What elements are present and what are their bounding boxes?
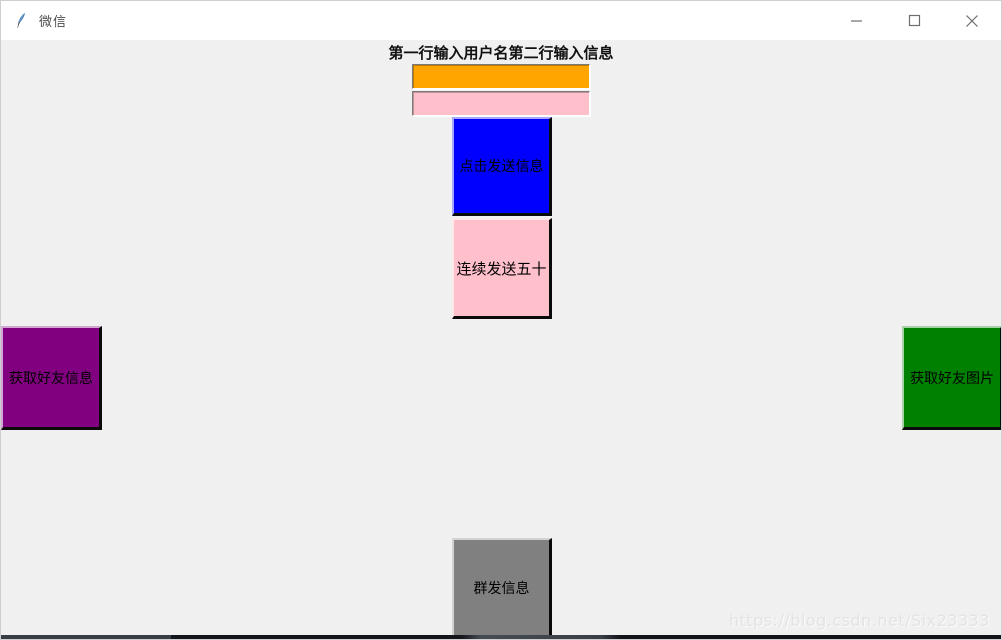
tk-feather-icon	[13, 12, 30, 29]
minimize-icon	[850, 14, 863, 27]
title-bar: 微信	[1, 1, 1001, 40]
get-friend-images-button[interactable]: 获取好友图片	[902, 326, 1002, 430]
minimize-button[interactable]	[827, 1, 885, 40]
send-fifty-button[interactable]: 连续发送五十	[452, 218, 552, 319]
app-window: 微信 第一行输入用户名第二行输入信息 点击发送信	[0, 0, 1002, 640]
get-friend-info-button[interactable]: 获取好友信息	[1, 326, 102, 430]
username-input[interactable]	[412, 64, 590, 89]
close-icon	[965, 14, 979, 28]
maximize-icon	[908, 14, 921, 27]
maximize-button[interactable]	[885, 1, 943, 40]
message-input[interactable]	[412, 91, 590, 116]
mass-send-button[interactable]: 群发信息	[452, 538, 552, 638]
bottom-edge-strip	[1, 635, 1001, 639]
csdn-watermark: https://blog.csdn.net/Six23333	[729, 611, 990, 630]
window-title: 微信	[39, 11, 67, 30]
window-controls	[827, 1, 1001, 40]
close-button[interactable]	[943, 1, 1001, 40]
send-message-button[interactable]: 点击发送信息	[452, 117, 552, 216]
instruction-label: 第一行输入用户名第二行输入信息	[1, 42, 1001, 63]
